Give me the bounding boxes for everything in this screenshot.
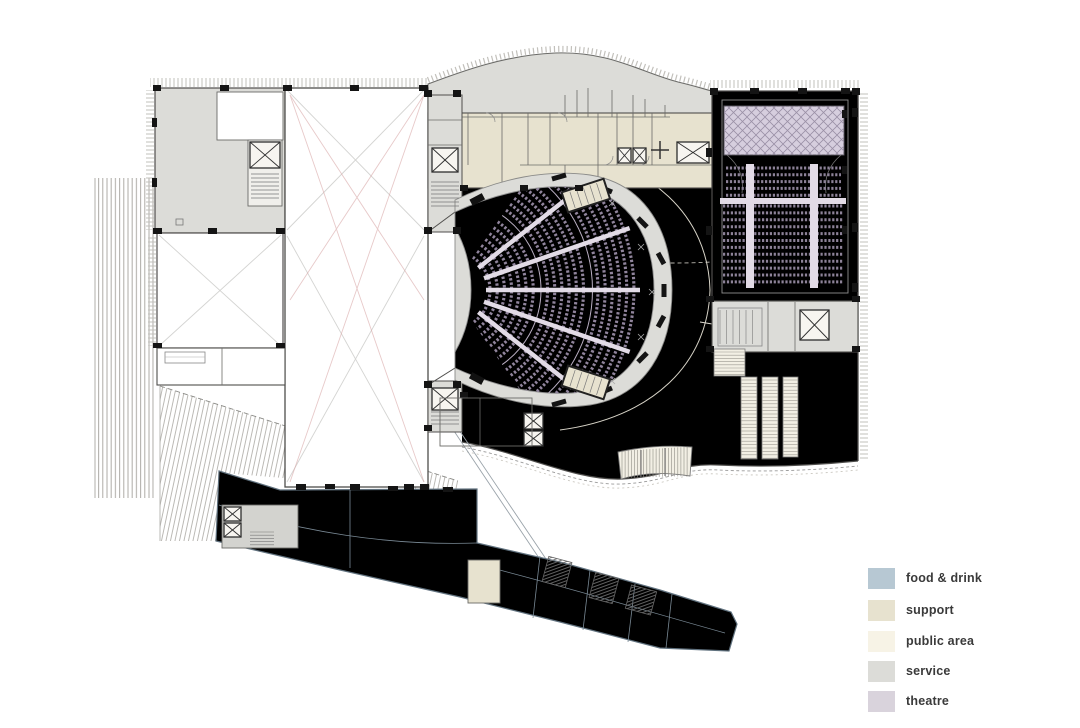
legend-swatch-service — [868, 661, 895, 682]
legend-label-support: support — [906, 603, 954, 617]
legend-label-food-drink: food & drink — [906, 571, 982, 585]
legend-swatch-public-area — [868, 631, 895, 652]
studio-service-strip — [712, 301, 858, 352]
legend-item-service: service — [868, 660, 951, 682]
legend-item-public-area: public area — [868, 630, 974, 652]
legend-swatch-food-drink — [868, 568, 895, 589]
ramp-hatch-west — [95, 178, 153, 498]
legend-item-support: support — [868, 599, 954, 621]
legend-item-theatre: theatre — [868, 690, 949, 712]
legend-label-public-area: public area — [906, 634, 974, 648]
legend-swatch-theatre — [868, 691, 895, 712]
service-roof-zone — [428, 53, 712, 113]
stage-house — [285, 88, 428, 487]
floor-plan-page: food & drink support public area service… — [0, 0, 1080, 728]
legend-label-service: service — [906, 664, 951, 678]
legend-swatch-support — [868, 600, 895, 621]
legend-label-theatre: theatre — [906, 694, 949, 708]
studio-theatre — [712, 91, 858, 352]
legend-item-food-drink: food & drink — [868, 567, 982, 589]
side-stage-room — [157, 233, 285, 385]
food-drink-wing — [216, 471, 737, 651]
